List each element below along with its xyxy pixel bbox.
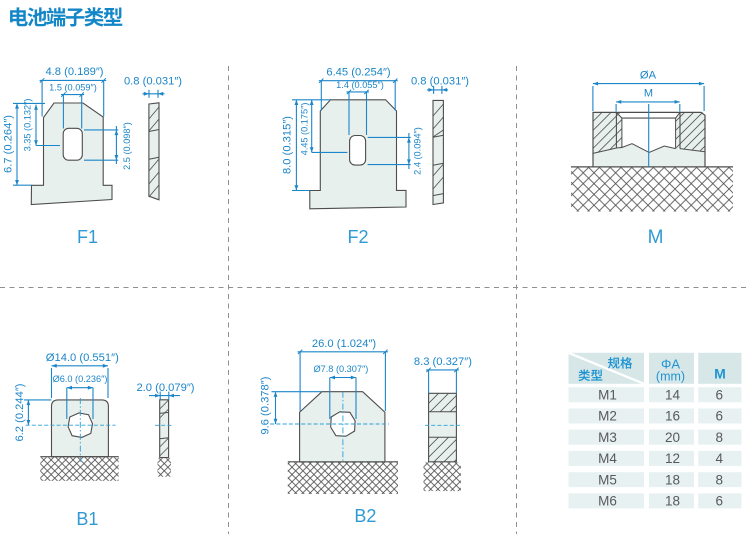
svg-text:2.4 (0.094″): 2.4 (0.094″) [412, 127, 422, 175]
svg-text:0.8 (0.031″): 0.8 (0.031″) [124, 76, 182, 88]
svg-text:M: M [648, 227, 664, 248]
svg-text:B2: B2 [354, 506, 376, 526]
svg-text:M6: M6 [598, 494, 617, 509]
svg-text:M2: M2 [598, 409, 617, 424]
svg-text:Ø7.8 (0.307″): Ø7.8 (0.307″) [313, 364, 368, 374]
svg-text:12: 12 [665, 451, 680, 466]
svg-text:2.5 (0.098″): 2.5 (0.098″) [122, 122, 132, 170]
svg-text:M1: M1 [598, 387, 617, 402]
svg-text:ØA: ØA [640, 70, 657, 82]
svg-text:M: M [714, 366, 726, 382]
svg-text:F1: F1 [77, 227, 98, 247]
svg-text:Ø14.0 (0.551″): Ø14.0 (0.551″) [46, 352, 119, 364]
svg-text:16: 16 [665, 409, 680, 424]
svg-text:M: M [644, 88, 653, 100]
svg-text:8: 8 [716, 472, 724, 487]
svg-text:8.3 (0.327″): 8.3 (0.327″) [414, 356, 472, 368]
svg-text:6: 6 [716, 387, 724, 402]
svg-text:4.45 (0.175″): 4.45 (0.175″) [299, 103, 309, 156]
svg-text:Ø6.0 (0.236″): Ø6.0 (0.236″) [53, 374, 108, 384]
svg-text:0.8 (0.031″): 0.8 (0.031″) [411, 76, 469, 88]
svg-text:3.35 (0.132″): 3.35 (0.132″) [23, 99, 33, 152]
svg-text:M4: M4 [598, 451, 617, 466]
svg-text:(mm): (mm) [656, 369, 685, 383]
svg-text:1.5 (0.059″): 1.5 (0.059″) [49, 83, 97, 93]
svg-text:6.2 (0.244″): 6.2 (0.244″) [14, 383, 26, 441]
svg-text:4: 4 [716, 451, 724, 466]
svg-text:2.0 (0.079″): 2.0 (0.079″) [136, 382, 194, 394]
svg-text:9.6 (0.378″): 9.6 (0.378″) [259, 376, 271, 434]
svg-text:6.7 (0.264″): 6.7 (0.264″) [2, 115, 14, 173]
svg-text:B1: B1 [76, 509, 98, 529]
svg-text:F2: F2 [347, 227, 368, 247]
svg-text:1.4 (0.055″): 1.4 (0.055″) [336, 80, 384, 90]
svg-text:4.8 (0.189″): 4.8 (0.189″) [45, 66, 103, 78]
svg-text:M3: M3 [598, 430, 617, 445]
svg-text:M5: M5 [598, 472, 617, 487]
svg-text:14: 14 [665, 387, 681, 402]
svg-text:6: 6 [716, 409, 724, 424]
svg-text:18: 18 [665, 494, 680, 509]
svg-text:20: 20 [665, 430, 680, 445]
svg-text:8: 8 [716, 430, 724, 445]
svg-text:18: 18 [665, 472, 680, 487]
svg-text:26.0 (1.024″): 26.0 (1.024″) [312, 338, 377, 350]
svg-text:8.0 (0.315″): 8.0 (0.315″) [282, 116, 294, 174]
svg-text:6: 6 [716, 494, 724, 509]
svg-text:6.45 (0.254″): 6.45 (0.254″) [326, 67, 391, 79]
